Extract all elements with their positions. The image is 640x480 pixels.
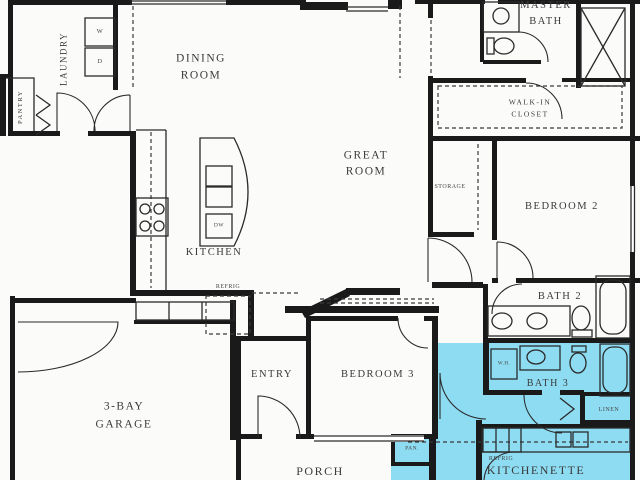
- walls: [0, 0, 640, 480]
- master-sink-counter: [483, 2, 519, 32]
- room-label-master-bath-line1: MASTER: [520, 1, 572, 12]
- kitchen-island: [200, 138, 248, 246]
- room-label-kitchen: KITCHEN: [186, 248, 243, 259]
- floor-plan: PANTRY LAUNDRY W D DINING ROOM MASTER BA…: [0, 0, 640, 480]
- linen-door-mark: [560, 398, 574, 420]
- kitchenette-refrigerator-label: REFRIG: [489, 456, 513, 462]
- water-heater-label: W.H.: [498, 362, 510, 367]
- room-label-storage: STORAGE: [434, 184, 465, 190]
- kitchen-sink: [206, 166, 232, 186]
- master-sink: [493, 8, 509, 24]
- refrigerator-label: REFRIG: [216, 284, 240, 290]
- room-label-master-bath-line2: BATH: [529, 17, 562, 28]
- kitchenette-sink: [556, 432, 571, 447]
- entry-door: [258, 396, 300, 438]
- suite-hall-door: [440, 373, 486, 419]
- room-label-walk-in-closet-line1: WALK-IN: [509, 98, 552, 106]
- bath2-door: [492, 284, 522, 314]
- dryer-label: D: [97, 59, 102, 66]
- room-label-bedroom3: BEDROOM 3: [341, 370, 415, 381]
- bath3-toilet: [570, 353, 586, 373]
- bedroom3-door: [398, 318, 428, 348]
- room-label-laundry: LAUNDRY: [60, 32, 69, 86]
- room-label-garage-line2: GARAGE: [96, 419, 153, 431]
- room-label-porch: PORCH: [296, 465, 344, 477]
- floor-plan-drawing: [0, 0, 640, 480]
- laundry-door: [57, 93, 95, 131]
- bedroom2-door: [497, 242, 533, 278]
- bath2-vanity: [488, 306, 570, 336]
- room-label-linen: LINEN: [599, 407, 620, 413]
- master-toilet-door: [518, 32, 548, 62]
- room-label-bedroom2: BEDROOM 2: [525, 202, 599, 213]
- room-label-bath2: BATH 2: [538, 292, 582, 303]
- garage-counter: [136, 302, 234, 320]
- master-toilet: [494, 38, 514, 54]
- garage-side-door: [18, 322, 118, 372]
- room-label-dining-line2: ROOM: [181, 70, 222, 82]
- room-label-great-room-line2: ROOM: [346, 166, 387, 178]
- pantry-bifold-door: [36, 95, 50, 115]
- kitchenette-refrigerator-box: [483, 428, 521, 452]
- room-label-great-room-line1: GREAT: [344, 150, 389, 162]
- bath2-toilet: [572, 306, 590, 330]
- washer-label: W: [97, 29, 104, 36]
- room-label-entry: ENTRY: [251, 370, 293, 381]
- bath3-vanity: [520, 346, 560, 370]
- door-swings: [18, 32, 562, 480]
- bath3-toilet-tank: [572, 346, 586, 352]
- room-label-kitchenette: KITCHENETTE: [487, 464, 585, 476]
- dishwasher-label: DW: [214, 223, 224, 229]
- room-label-walk-in-closet-line2: CLOSET: [511, 110, 548, 118]
- cooktop: [136, 198, 168, 236]
- master-toilet-tank: [487, 38, 494, 54]
- room-label-garage-line1: 3-BAY: [104, 401, 144, 413]
- room-label-bath3: BATH 3: [527, 379, 570, 389]
- room-label-pantry: PANTRY: [18, 90, 25, 124]
- room-label-dining-line1: DINING: [176, 53, 226, 65]
- pantry-cabinet-label: PAN.: [405, 446, 419, 452]
- hall-door: [428, 238, 472, 282]
